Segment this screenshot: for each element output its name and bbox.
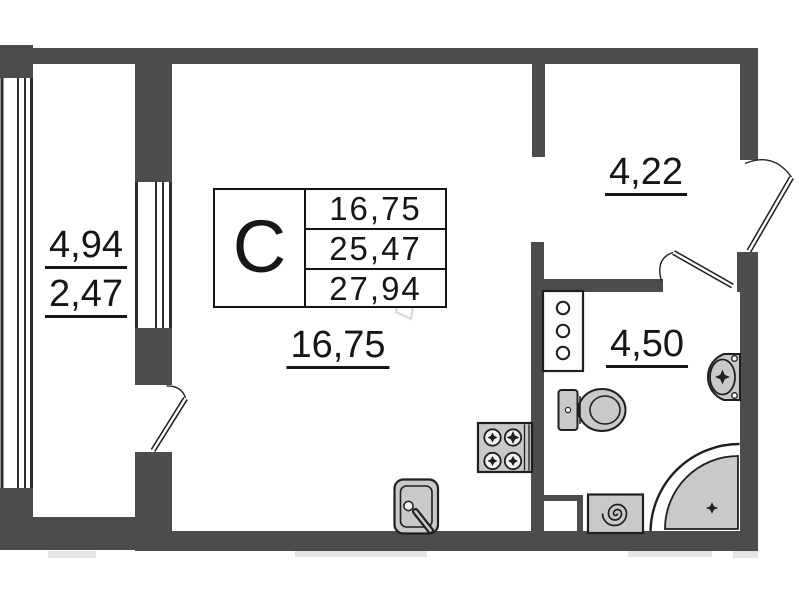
wall-balcony-divider-top <box>135 48 172 182</box>
wall-top-left-pier <box>0 45 33 78</box>
kitchen-sink-icon <box>395 480 439 534</box>
section-letter: C <box>215 190 306 306</box>
title-block-values: 16,75 25,47 27,94 <box>306 190 445 306</box>
balcony-area-label: 4,94 2,47 <box>45 227 127 318</box>
door-swing-arc <box>167 386 186 398</box>
balcony-outer-window <box>2 78 32 488</box>
door-leaf-core <box>153 399 186 451</box>
total-area-value: 27,94 <box>306 270 445 308</box>
living-room-window <box>137 182 171 328</box>
wall-balcony-divider-low <box>135 452 172 531</box>
door-leaf-core <box>749 178 792 252</box>
balcony-area-full: 4,94 <box>45 227 127 269</box>
corner-shower-icon <box>651 444 740 531</box>
balcony-area-reduced: 2,47 <box>45 276 127 318</box>
wall-right-upper <box>740 48 758 160</box>
ventilation-shaft-icon <box>543 291 583 371</box>
washbasin-icon <box>708 354 740 400</box>
balcony-door <box>153 386 186 451</box>
living-area-value: 16,75 <box>306 190 445 230</box>
wall-duct-stub-right <box>577 495 583 533</box>
wall-right-lower <box>740 252 758 551</box>
wall-entry-jamb <box>737 252 740 292</box>
wall-bottom <box>135 531 757 551</box>
washing-machine-icon <box>588 495 643 534</box>
bathroom-door <box>660 253 733 287</box>
door-swing-arc <box>745 160 792 177</box>
toilet-icon <box>559 389 626 431</box>
apartment-area-value: 25,47 <box>306 230 445 270</box>
bathroom-area-label: 4,50 <box>606 326 688 368</box>
entrance-door <box>745 160 792 251</box>
floor-plan: 4,94 2,47 16,75 4,22 4,50 C 16,75 25,47 … <box>0 0 799 600</box>
wall-shadows <box>48 551 758 558</box>
door-swing-arc <box>660 253 673 282</box>
stove-icon <box>478 423 532 472</box>
wall-balcony-divider-mid <box>135 328 172 385</box>
hallway-area-label: 4,22 <box>605 154 687 196</box>
title-block: C 16,75 25,47 27,94 <box>213 188 447 308</box>
wall-hallway-stub <box>532 64 545 157</box>
door-leaf-core <box>674 253 733 287</box>
living-room-area-label: 16,75 <box>286 327 389 369</box>
